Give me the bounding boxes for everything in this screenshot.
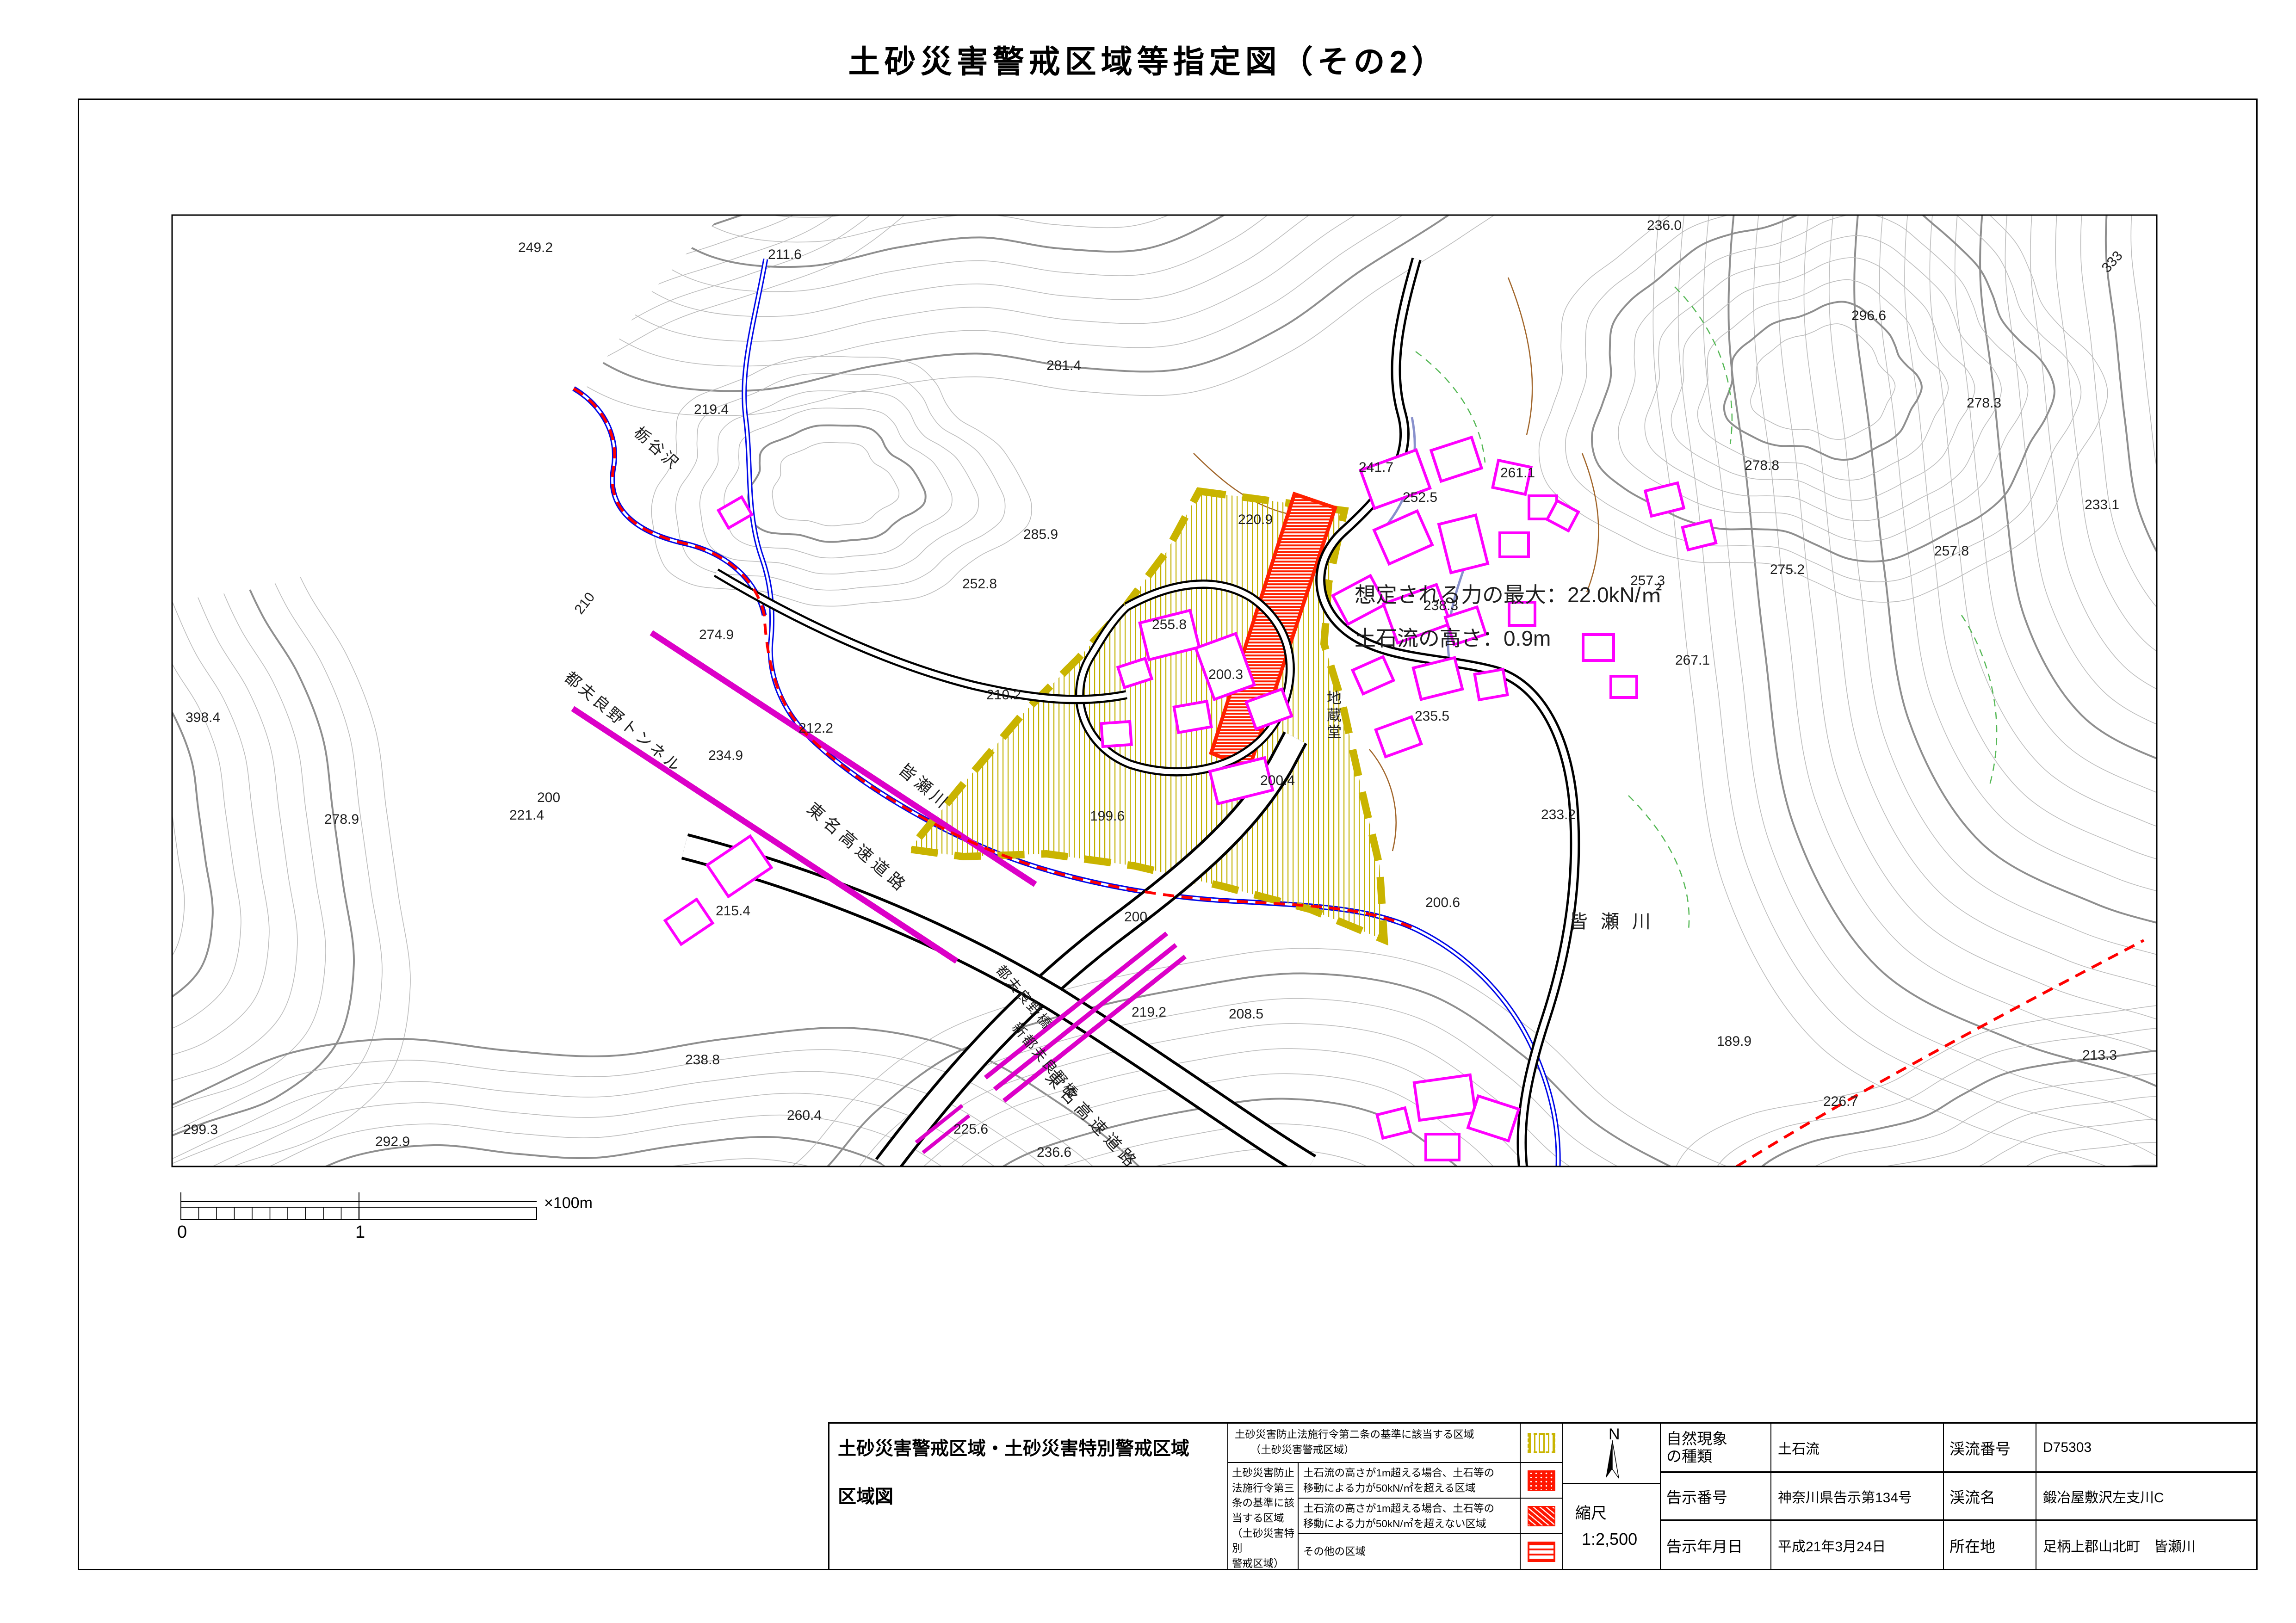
info-label-stream-name: 渓流名 <box>1944 1473 2036 1521</box>
elevation-label: 292.9 <box>375 1134 410 1149</box>
elevation-label: 257.8 <box>1934 543 1969 559</box>
building-outline <box>1683 520 1716 550</box>
elevation-label: 238.3 <box>1423 598 1458 613</box>
elevation-label: 241.7 <box>1359 460 1393 475</box>
elevation-label: 252.8 <box>962 576 997 592</box>
elevation-label: 200.6 <box>1425 895 1460 910</box>
info-value-location: 足柄上郡山北町 皆瀬川 <box>2036 1521 2256 1569</box>
info-value-phenomenon: 土石流 <box>1771 1424 1944 1473</box>
scale-label: 縮尺 <box>1575 1500 1660 1523</box>
elevation-label: 220.9 <box>1238 512 1273 527</box>
elevation-label: 255.8 <box>1152 617 1187 632</box>
info-value-stream-name: 鍛冶屋敷沢左支川C <box>2036 1473 2256 1521</box>
building-outline <box>1645 483 1683 516</box>
elevation-label: 238.8 <box>685 1052 720 1068</box>
elevation-label: 219.2 <box>1132 1005 1166 1020</box>
vegetation-boundaries <box>1416 287 1997 930</box>
legend-swatch-red2-cell <box>1520 1499 1562 1534</box>
elevation-label: 200.4 <box>1260 773 1295 788</box>
info-label-phenomenon: 自然現象 の種類 <box>1661 1424 1771 1473</box>
elevation-label: 215.4 <box>716 903 750 919</box>
legend-row1-text: 土砂災害防止法施行令第二条の基準に該当する区域 （土砂災害警戒区域） <box>1228 1424 1520 1463</box>
building-outline <box>1475 669 1508 700</box>
info-label-notice-date: 告示年月日 <box>1661 1521 1771 1569</box>
elevation-label: 233.1 <box>2085 497 2119 512</box>
info-value-stream-no: D75303 <box>2036 1424 2256 1473</box>
info-label-stream-no: 渓流番号 <box>1944 1424 2036 1473</box>
scale-cell: 縮尺 1:2,500 <box>1562 1484 1660 1569</box>
elevation-label: 275.2 <box>1770 562 1805 577</box>
elevation-label: 234.9 <box>708 748 743 763</box>
elevation-label: 278.9 <box>324 812 359 827</box>
building-outline <box>1431 437 1481 481</box>
elevation-label: 236.6 <box>1037 1145 1071 1160</box>
building-outline <box>1101 722 1131 747</box>
elevation-label: 278.8 <box>1745 458 1779 473</box>
elevation-label: 285.9 <box>1023 527 1058 542</box>
blank-area <box>172 215 722 601</box>
building-outline <box>1426 1134 1459 1160</box>
building-outline <box>1353 657 1394 694</box>
info-value-notice-no: 神奈川県告示第134号 <box>1771 1473 1944 1521</box>
elevation-label: 267.1 <box>1675 653 1710 668</box>
info-table: 自然現象 の種類 土石流 渓流番号 D75303 告示番号 神奈川県告示第134… <box>1660 1424 2256 1569</box>
topographic-map: 想定される力の最大：22.0kN/㎡土石流の高さ：0.9m栃谷沢皆瀬川皆瀬川地蔵… <box>0 0 2296 1623</box>
building-outline <box>1174 701 1212 733</box>
scale-value: 1:2,500 <box>1575 1530 1660 1549</box>
legend-swatch-red1-cell <box>1520 1463 1562 1499</box>
other-area-swatch <box>1528 1542 1555 1562</box>
scale-bar <box>180 1192 537 1220</box>
building-outline <box>1374 511 1432 564</box>
elevation-label: 233.2 <box>1541 807 1576 822</box>
elevation-label: 249.2 <box>518 240 553 255</box>
building-outline <box>1414 1075 1475 1120</box>
elevation-label: 219.4 <box>694 402 729 417</box>
warning-zone-swatch <box>1528 1433 1555 1453</box>
elevation-label: 200 <box>537 790 560 805</box>
building-outline <box>1413 658 1462 699</box>
legend-map-title: 土砂災害警戒区域・土砂災害特別警戒区域 区域図 <box>829 1424 1228 1569</box>
building-outline <box>1439 515 1488 573</box>
elevation-label: 236.0 <box>1647 218 1682 233</box>
map-name-label: 栃谷沢 <box>631 424 684 474</box>
elevation-label: 210.2 <box>986 687 1021 703</box>
elevation-label: 226.7 <box>1823 1094 1858 1109</box>
building-outline <box>1583 635 1614 660</box>
building-outline <box>1468 1096 1519 1141</box>
building-outline <box>1611 676 1637 697</box>
elevation-label: 189.9 <box>1717 1034 1751 1049</box>
elevation-label: 221.4 <box>509 808 544 823</box>
elevation-label: 200 <box>1124 909 1147 925</box>
elevation-label: 208.5 <box>1229 1006 1263 1022</box>
scale-bar-label: ×100m <box>544 1194 593 1212</box>
elevation-label: 252.5 <box>1403 490 1437 505</box>
elevation-label: 211.6 <box>768 247 802 262</box>
elevation-label: 299.3 <box>183 1122 218 1137</box>
special-zone-over50kN-swatch <box>1528 1470 1555 1491</box>
map-name-label: 地蔵堂 <box>1327 690 1342 741</box>
building-outline <box>1500 533 1529 557</box>
elevation-label: 257.3 <box>1630 573 1665 588</box>
info-label-location: 所在地 <box>1944 1521 2036 1569</box>
elevation-label: 213.3 <box>2082 1048 2117 1063</box>
elevation-label: 199.6 <box>1090 808 1125 824</box>
elevation-label: 274.9 <box>699 627 734 642</box>
legend-swatch-other-cell <box>1520 1534 1562 1569</box>
legend-swatch-warning-cell <box>1520 1424 1562 1463</box>
building-outline <box>1377 1108 1411 1138</box>
legend-map-title-line2: 区域図 <box>838 1485 1227 1509</box>
legend-map-title-line1: 土砂災害警戒区域・土砂災害特別警戒区域 <box>838 1437 1227 1461</box>
legend-title-block: 土砂災害警戒区域・土砂災害特別警戒区域 区域図 土砂災害防止法施行令第二条の基準… <box>828 1422 2258 1570</box>
legend-row3-text: 土石流の高さが1m超える場合、土石等の 移動による力が50kN/㎡を超えない区域 <box>1299 1499 1520 1534</box>
legend-row4-text: その他の区域 <box>1299 1534 1520 1569</box>
sheet: 土砂災害警戒区域等指定図（その2） <box>0 0 2296 1623</box>
elevation-label: 212.2 <box>798 721 833 736</box>
elevation-label: 260.4 <box>787 1108 822 1123</box>
legend-row2-text: 土石流の高さが1m超える場合、土石等の 移動による力が50kN/㎡を超える区域 <box>1299 1463 1520 1499</box>
north-arrow-cell: N <box>1562 1424 1660 1484</box>
building-outline <box>718 497 752 528</box>
elevation-label: 200.3 <box>1208 667 1243 682</box>
map-name-label: 都夫良野トンネル <box>561 668 686 777</box>
scale-bar-label: 0 <box>177 1222 187 1242</box>
special-zone-under50kN-swatch <box>1528 1506 1555 1526</box>
map-name-label: 想定される力の最大：22.0kN/㎡ <box>1355 583 1662 607</box>
elevation-label: 225.6 <box>953 1122 988 1137</box>
map-name-label: 土石流の高さ：0.9m <box>1355 626 1551 650</box>
info-value-notice-date: 平成21年3月24日 <box>1771 1521 1944 1569</box>
north-arrow-icon: N <box>1563 1424 1660 1484</box>
north-label: N <box>1609 1426 1620 1443</box>
elevation-label: 398.4 <box>186 710 220 725</box>
elevation-label: 261.1 <box>1500 465 1535 481</box>
elevation-label: 281.4 <box>1046 358 1081 373</box>
map-name-label: 皆瀬川 <box>1569 912 1664 932</box>
elevation-label: 210 <box>572 590 598 617</box>
legend-group-label: 土砂災害防止 法施行令第三 条の基準に該 当する区域 （土砂災害特別 警戒区域） <box>1228 1463 1299 1569</box>
elevation-label: 278.3 <box>1967 395 2001 411</box>
building-outline <box>665 899 713 944</box>
info-label-notice-no: 告示番号 <box>1661 1473 1771 1521</box>
scale-bar-label: 1 <box>355 1222 365 1242</box>
elevation-label: 296.6 <box>1851 308 1886 323</box>
elevation-label: 235.5 <box>1415 709 1449 724</box>
elevation-label: 333 <box>2099 248 2126 275</box>
